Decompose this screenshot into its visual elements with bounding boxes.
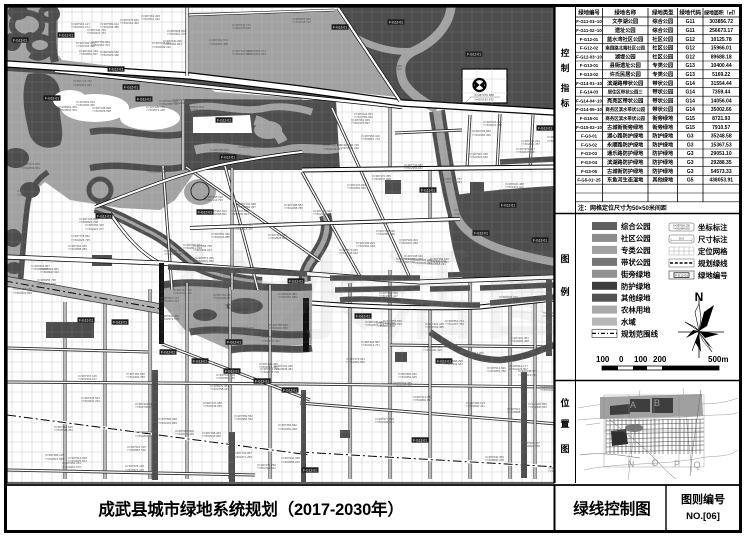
svg-text:35002.66: 35002.66 bbox=[711, 107, 732, 113]
svg-text:F-G14-04~10: F-G14-04~10 bbox=[576, 98, 602, 103]
svg-text:古城街防护绿地: 古城街防护绿地 bbox=[607, 167, 644, 175]
svg-text:A: A bbox=[630, 400, 636, 410]
svg-text:Y=503012.349: Y=503012.349 bbox=[175, 432, 194, 436]
svg-text:Y=503529.538: Y=503529.538 bbox=[92, 109, 111, 113]
svg-text:防护绿地: 防护绿地 bbox=[652, 149, 674, 157]
svg-text:Y=503588.489: Y=503588.489 bbox=[68, 247, 87, 251]
svg-text:Y=502090.441: Y=502090.441 bbox=[466, 404, 485, 408]
svg-text:标: 标 bbox=[560, 97, 570, 108]
svg-text:Y=502932.744: Y=502932.744 bbox=[81, 399, 100, 403]
svg-text:F-G12-01: F-G12-01 bbox=[501, 204, 515, 208]
svg-text:8721.93: 8721.93 bbox=[712, 116, 730, 122]
svg-text:图: 图 bbox=[560, 444, 569, 454]
svg-text:Y=503602.921: Y=503602.921 bbox=[261, 339, 280, 343]
svg-text:Y=503393.217: Y=503393.217 bbox=[185, 108, 204, 112]
svg-text:256673.17: 256673.17 bbox=[709, 28, 733, 34]
svg-text:G15: G15 bbox=[685, 116, 695, 122]
svg-text:Y=502392.649: Y=502392.649 bbox=[356, 244, 375, 248]
svg-text:15966.01: 15966.01 bbox=[711, 46, 732, 52]
svg-text:位: 位 bbox=[560, 397, 569, 408]
svg-text:F-G14-03: F-G14-03 bbox=[580, 90, 599, 95]
svg-text:B: B bbox=[654, 398, 660, 408]
svg-text:湖堤公园: 湖堤公园 bbox=[615, 52, 636, 60]
svg-text:Y=503754.689: Y=503754.689 bbox=[278, 295, 297, 299]
svg-text:Y=503331.899: Y=503331.899 bbox=[13, 291, 32, 295]
svg-text:C: C bbox=[675, 398, 682, 408]
svg-text:Y=503222.202: Y=503222.202 bbox=[393, 384, 412, 388]
svg-text:Y=503252.769: Y=503252.769 bbox=[487, 369, 506, 373]
svg-text:F-G12-01: F-G12-01 bbox=[289, 280, 303, 284]
svg-text:县衙遗址公园: 县衙遗址公园 bbox=[610, 61, 641, 69]
svg-text:31554.44: 31554.44 bbox=[711, 81, 732, 87]
svg-text:蓝水湾社区公园: 蓝水湾社区公园 bbox=[607, 35, 643, 43]
svg-text:带状公园: 带状公园 bbox=[652, 96, 673, 104]
svg-text:G13: G13 bbox=[685, 72, 695, 78]
svg-text:5169.22: 5169.22 bbox=[712, 72, 730, 78]
svg-text:F-G3-04: F-G3-04 bbox=[581, 160, 598, 165]
svg-text:F-G12-01: F-G12-01 bbox=[333, 26, 347, 30]
svg-text:F-G12-01: F-G12-01 bbox=[389, 21, 403, 25]
svg-text:15367.53: 15367.53 bbox=[711, 142, 732, 148]
svg-text:Y=503945.553: Y=503945.553 bbox=[235, 329, 254, 333]
svg-text:F-G14-01~10: F-G14-01~10 bbox=[576, 81, 602, 86]
svg-text:滨湖路防护绿地: 滨湖路防护绿地 bbox=[607, 158, 644, 166]
svg-text:F-G11-02~10: F-G11-02~10 bbox=[576, 28, 602, 33]
svg-text:Y=503365.434: Y=503365.434 bbox=[216, 376, 235, 380]
svg-text:Y=502893.623: Y=502893.623 bbox=[135, 434, 154, 438]
svg-text:F-G12-02: F-G12-02 bbox=[580, 46, 599, 51]
svg-text:防护绿地: 防护绿地 bbox=[652, 132, 674, 140]
svg-text:坐标标注: 坐标标注 bbox=[698, 223, 728, 232]
svg-text:注：网格定位尺寸为50×50米间距: 注：网格定位尺寸为50×50米间距 bbox=[578, 204, 667, 212]
svg-text:Y=502587.540: Y=502587.540 bbox=[127, 448, 146, 452]
svg-text:绿地名称: 绿地名称 bbox=[614, 8, 636, 16]
svg-text:89688.18: 89688.18 bbox=[711, 54, 732, 60]
svg-text:Y=503705.498: Y=503705.498 bbox=[213, 281, 232, 285]
svg-text:商务区滨水带状公园: 商务区滨水带状公园 bbox=[605, 115, 645, 122]
svg-text:置: 置 bbox=[560, 419, 569, 429]
svg-text:Y=503449.160: Y=503449.160 bbox=[340, 146, 359, 150]
svg-text:G12: G12 bbox=[685, 46, 695, 52]
svg-text:NO.[06]: NO.[06] bbox=[686, 511, 720, 522]
svg-text:Y=502367.114: Y=502367.114 bbox=[383, 67, 402, 71]
svg-text:G5: G5 bbox=[687, 178, 694, 184]
svg-text:图则编号: 图则编号 bbox=[681, 492, 725, 506]
svg-text:图: 图 bbox=[560, 254, 569, 264]
svg-text:Y=502951.670: Y=502951.670 bbox=[62, 465, 81, 469]
svg-text:0: 0 bbox=[619, 355, 624, 364]
svg-text:7359.44: 7359.44 bbox=[712, 90, 730, 96]
svg-text:南园路北端社区公园: 南园路北端社区公园 bbox=[605, 45, 645, 52]
svg-text:N: N bbox=[628, 459, 635, 469]
svg-text:绿地代码: 绿地代码 bbox=[679, 8, 701, 16]
svg-text:29288.35: 29288.35 bbox=[711, 160, 732, 166]
svg-text:Y=502389.199: Y=502389.199 bbox=[376, 232, 395, 236]
svg-text:Y=502501.242: Y=502501.242 bbox=[141, 17, 160, 21]
svg-text:Y=503469.308: Y=503469.308 bbox=[510, 339, 529, 343]
svg-text:Y=502171.538: Y=502171.538 bbox=[37, 282, 56, 286]
svg-text:Y=502956.846: Y=502956.846 bbox=[404, 166, 423, 170]
svg-text:Y=503758.327: Y=503758.327 bbox=[210, 387, 229, 391]
svg-text:商务区滨水带状公园: 商务区滨水带状公园 bbox=[605, 106, 645, 113]
svg-text:G3: G3 bbox=[687, 142, 694, 148]
svg-text:Y=503000.966: Y=503000.966 bbox=[521, 444, 540, 448]
svg-text:Y=503365.462: Y=503365.462 bbox=[465, 355, 484, 359]
svg-text:湖心路防护绿地: 湖心路防护绿地 bbox=[607, 132, 644, 140]
svg-text:滨湖路带状公园: 滨湖路带状公园 bbox=[607, 79, 643, 87]
svg-text:制: 制 bbox=[561, 62, 570, 73]
svg-text:Y=502141.763: Y=502141.763 bbox=[204, 198, 223, 202]
svg-text:G3: G3 bbox=[687, 134, 694, 140]
svg-text:P: P bbox=[674, 459, 680, 469]
svg-text:农林用地: 农林用地 bbox=[620, 306, 651, 315]
svg-text:F-G13-01: F-G13-01 bbox=[580, 63, 599, 68]
svg-text:G13: G13 bbox=[685, 63, 695, 69]
svg-text:Y=503260.408: Y=503260.408 bbox=[278, 427, 297, 431]
svg-text:X=387070.588: X=387070.588 bbox=[474, 93, 494, 97]
svg-text:G14: G14 bbox=[685, 98, 695, 104]
svg-text:F-G3-05: F-G3-05 bbox=[581, 169, 598, 174]
svg-text:G14: G14 bbox=[685, 107, 695, 113]
svg-text:街旁绿地: 街旁绿地 bbox=[620, 270, 651, 279]
svg-text:Y=502301.147: Y=502301.147 bbox=[78, 377, 97, 381]
svg-text:综合公园: 综合公园 bbox=[621, 222, 651, 231]
svg-text:定位网格: 定位网格 bbox=[698, 247, 728, 256]
svg-text:F-G3-01: F-G3-01 bbox=[581, 134, 598, 139]
svg-text:社区公园: 社区公园 bbox=[651, 44, 673, 52]
svg-text:Y=502569.951: Y=502569.951 bbox=[21, 166, 40, 170]
svg-text:社区公园: 社区公园 bbox=[651, 35, 673, 43]
svg-text:Y=503182.872: Y=503182.872 bbox=[474, 98, 494, 102]
svg-text:专类公园: 专类公园 bbox=[652, 61, 673, 69]
svg-text:亮亮区带状公园: 亮亮区带状公园 bbox=[607, 96, 643, 104]
svg-text:防护绿地: 防护绿地 bbox=[652, 167, 674, 175]
svg-text:Y=502891.851: Y=502891.851 bbox=[413, 398, 432, 402]
svg-text:F-G12-01: F-G12-01 bbox=[467, 53, 481, 57]
svg-text:Y=502947.995: Y=502947.995 bbox=[372, 177, 391, 181]
svg-text:F-G15-01: F-G15-01 bbox=[580, 116, 599, 121]
svg-text:居住区带状公园三: 居住区带状公园三 bbox=[608, 89, 644, 96]
svg-text:Y=502719.621: Y=502719.621 bbox=[257, 466, 276, 470]
svg-text:7910.57: 7910.57 bbox=[712, 125, 730, 131]
svg-text:Y=503892.906: Y=503892.906 bbox=[527, 33, 546, 37]
svg-text:Y=502480.443: Y=502480.443 bbox=[164, 252, 183, 256]
svg-text:F-G3-03: F-G3-03 bbox=[581, 151, 598, 156]
svg-text:F-G12-01: F-G12-01 bbox=[124, 86, 138, 90]
svg-text:Y=502191.869: Y=502191.869 bbox=[158, 421, 177, 425]
svg-text:200: 200 bbox=[653, 355, 667, 364]
svg-text:Y=502124.845: Y=502124.845 bbox=[313, 212, 332, 216]
svg-text:Y=503167.784: Y=503167.784 bbox=[445, 322, 464, 326]
svg-text:Y=503382.340: Y=503382.340 bbox=[472, 133, 491, 137]
svg-text:Y=503701.385: Y=503701.385 bbox=[425, 325, 444, 329]
svg-text:许氏民居公园: 许氏民居公园 bbox=[610, 70, 641, 78]
svg-text:带状公园: 带状公园 bbox=[652, 79, 673, 87]
svg-text:Y=502921.869: Y=502921.869 bbox=[195, 259, 214, 263]
svg-text:O: O bbox=[651, 458, 658, 468]
svg-text:F-G12-03~10: F-G12-03~10 bbox=[576, 54, 602, 59]
svg-text:水域: 水域 bbox=[621, 318, 636, 327]
svg-text:文亭湖公园: 文亭湖公园 bbox=[612, 17, 638, 25]
svg-text:F-G12-01: F-G12-01 bbox=[193, 360, 207, 364]
svg-text:F-G5-01~25: F-G5-01~25 bbox=[577, 178, 601, 183]
svg-text:Y=502321.277: Y=502321.277 bbox=[85, 227, 104, 231]
svg-text:绿地类型: 绿地类型 bbox=[652, 8, 674, 16]
svg-text:遗址公园: 遗址公园 bbox=[614, 26, 636, 34]
svg-text:Y=503594.324: Y=503594.324 bbox=[54, 428, 73, 432]
svg-text:F-G12-01: F-G12-01 bbox=[538, 127, 552, 131]
svg-text:F-G12-01: F-G12-01 bbox=[97, 215, 111, 219]
svg-text:带状公园: 带状公园 bbox=[621, 258, 651, 267]
svg-text:G11: G11 bbox=[686, 19, 695, 25]
svg-text:Y=502435.611: Y=502435.611 bbox=[232, 26, 251, 30]
svg-text:防护绿地: 防护绿地 bbox=[652, 140, 674, 148]
svg-text:Y=503432.885: Y=503432.885 bbox=[211, 235, 230, 239]
svg-text:Y=502019.736: Y=502019.736 bbox=[518, 373, 537, 377]
svg-text:Y=502745.171: Y=502745.171 bbox=[135, 405, 154, 409]
svg-text:Y=503349.390: Y=503349.390 bbox=[203, 404, 222, 408]
svg-text:成武县城市绿地系统规划（2017-2030年）: 成武县城市绿地系统规划（2017-2030年） bbox=[98, 499, 403, 519]
svg-text:Y=502992.344: Y=502992.344 bbox=[160, 299, 179, 303]
svg-text:控: 控 bbox=[561, 47, 570, 58]
svg-text:Y=502161.400: Y=502161.400 bbox=[120, 21, 139, 25]
svg-text:F-G3-02: F-G3-02 bbox=[581, 142, 598, 147]
svg-text:F-G12-01: F-G12-01 bbox=[675, 273, 688, 277]
svg-text:F-G12-01: F-G12-01 bbox=[109, 68, 123, 72]
svg-text:综合公园: 综合公园 bbox=[652, 17, 673, 25]
svg-text:Y=502006.996: Y=502006.996 bbox=[76, 103, 95, 107]
svg-text:Y=502308.492: Y=502308.492 bbox=[173, 291, 192, 295]
svg-text:500m: 500m bbox=[708, 355, 728, 364]
svg-text:F-G13-02: F-G13-02 bbox=[580, 72, 599, 77]
svg-text:例: 例 bbox=[560, 286, 569, 297]
svg-text:F-G12-01: F-G12-01 bbox=[580, 37, 599, 42]
svg-text:Y=503944.304: Y=503944.304 bbox=[58, 108, 77, 112]
svg-text:F-G12-01: F-G12-01 bbox=[113, 321, 127, 325]
svg-text:Y=502216.470: Y=502216.470 bbox=[234, 227, 253, 231]
svg-text:规划范围线: 规划范围线 bbox=[621, 330, 659, 339]
svg-text:Y=503881.713: Y=503881.713 bbox=[361, 137, 380, 141]
svg-text:尺寸标注: 尺寸标注 bbox=[697, 235, 728, 244]
svg-text:Y=503531.158: Y=503531.158 bbox=[483, 123, 502, 127]
svg-text:Y=503301.473: Y=503301.473 bbox=[167, 32, 186, 36]
svg-text:Y=503369.917: Y=503369.917 bbox=[193, 248, 212, 252]
svg-text:Y=503928.303: Y=503928.303 bbox=[268, 236, 287, 240]
svg-text:30.0: 30.0 bbox=[679, 237, 685, 241]
svg-text:303856.72: 303856.72 bbox=[709, 19, 733, 25]
svg-text:Y=502952.945: Y=502952.945 bbox=[398, 375, 417, 379]
svg-text:438053.91: 438053.91 bbox=[709, 178, 733, 184]
svg-text:F-G12-01: F-G12-01 bbox=[59, 34, 73, 38]
svg-text:Y=503271.258: Y=503271.258 bbox=[233, 455, 252, 459]
svg-text:其他绿地: 其他绿地 bbox=[621, 294, 651, 303]
svg-text:社区公园: 社区公园 bbox=[620, 234, 651, 243]
svg-text:F-G11-01~10: F-G11-01~10 bbox=[576, 19, 602, 24]
svg-text:G15: G15 bbox=[685, 125, 695, 131]
svg-text:Y=502392.780: Y=502392.780 bbox=[126, 375, 145, 379]
svg-text:Y=503800.478: Y=503800.478 bbox=[485, 458, 504, 462]
svg-text:Y=502292.242: Y=502292.242 bbox=[247, 52, 266, 56]
svg-text:F-G12-01: F-G12-01 bbox=[437, 360, 451, 364]
svg-text:G14: G14 bbox=[685, 90, 695, 96]
svg-text:Y=502810.787: Y=502810.787 bbox=[521, 142, 540, 146]
svg-text:Y=503437.763: Y=503437.763 bbox=[87, 31, 106, 35]
svg-text:Y=502190.326: Y=502190.326 bbox=[423, 348, 442, 352]
svg-text:东鱼河生态湿地: 东鱼河生态湿地 bbox=[607, 176, 644, 184]
svg-text:F-G12-01: F-G12-01 bbox=[137, 98, 151, 102]
svg-text:Y=502969.643: Y=502969.643 bbox=[383, 322, 402, 326]
svg-text:Y=503630.901: Y=503630.901 bbox=[230, 212, 249, 216]
svg-text:防护绿地: 防护绿地 bbox=[621, 282, 651, 291]
svg-text:F-G15-02~10: F-G15-02~10 bbox=[576, 125, 602, 130]
svg-text:规划绿线: 规划绿线 bbox=[698, 259, 728, 268]
svg-text:Y=503923.218: Y=503923.218 bbox=[125, 468, 144, 472]
svg-text:社区公园: 社区公园 bbox=[651, 52, 673, 60]
svg-text:Y=503883.737: Y=503883.737 bbox=[30, 133, 49, 137]
svg-text:永顺路防护绿地: 永顺路防护绿地 bbox=[606, 140, 644, 148]
svg-text:Y=503429.448: Y=503429.448 bbox=[100, 53, 119, 57]
svg-text:Y=502163.338: Y=502163.338 bbox=[76, 44, 95, 48]
svg-text:G12: G12 bbox=[685, 54, 695, 60]
svg-text:Y=503481.690: Y=503481.690 bbox=[347, 186, 366, 190]
svg-text:F-G12-01: F-G12-01 bbox=[356, 315, 370, 319]
svg-text:Y=502625.735: Y=502625.735 bbox=[71, 238, 90, 242]
svg-text:绿地编号: 绿地编号 bbox=[698, 271, 728, 280]
svg-text:G3: G3 bbox=[687, 169, 694, 175]
svg-text:Q: Q bbox=[693, 460, 700, 470]
svg-text:F-G12-01: F-G12-01 bbox=[221, 156, 235, 160]
svg-text:14056.04: 14056.04 bbox=[711, 98, 732, 104]
svg-text:街旁绿地: 街旁绿地 bbox=[651, 114, 674, 122]
svg-text:F-G12-01: F-G12-01 bbox=[198, 211, 212, 215]
svg-text:G3: G3 bbox=[687, 151, 694, 157]
svg-text:Y=502984.662: Y=502984.662 bbox=[673, 227, 691, 231]
svg-text:F-G14-05~10: F-G14-05~10 bbox=[576, 107, 602, 112]
svg-text:35248.58: 35248.58 bbox=[711, 134, 732, 140]
svg-text:F-G12-01: F-G12-01 bbox=[227, 341, 241, 345]
svg-text:100: 100 bbox=[596, 355, 610, 364]
svg-text:G12: G12 bbox=[685, 37, 695, 43]
svg-text:综合公园: 综合公园 bbox=[652, 26, 673, 34]
svg-text:绿线控制图: 绿线控制图 bbox=[573, 499, 651, 518]
svg-text:通乐路防护绿地: 通乐路防护绿地 bbox=[607, 149, 644, 157]
svg-text:防护绿地: 防护绿地 bbox=[652, 158, 674, 166]
svg-text:Y=502999.379: Y=502999.379 bbox=[213, 296, 232, 300]
svg-text:专类公园: 专类公园 bbox=[652, 70, 673, 78]
svg-text:G14: G14 bbox=[685, 81, 695, 87]
svg-text:绿地面积（㎡）: 绿地面积（㎡） bbox=[704, 9, 738, 16]
svg-text:Y=502849.438: Y=502849.438 bbox=[240, 305, 259, 309]
svg-text:10125.78: 10125.78 bbox=[711, 37, 732, 43]
svg-text:指: 指 bbox=[561, 82, 570, 93]
svg-text:古城街街旁绿地: 古城街街旁绿地 bbox=[607, 123, 644, 131]
svg-text:G3: G3 bbox=[687, 160, 694, 166]
svg-text:Y=503414.761: Y=503414.761 bbox=[361, 343, 380, 347]
svg-text:Y=502952.552: Y=502952.552 bbox=[234, 417, 253, 421]
svg-text:54573.33: 54573.33 bbox=[711, 169, 732, 175]
svg-text:Y=502273.575: Y=502273.575 bbox=[160, 317, 179, 321]
svg-text:带状公园: 带状公园 bbox=[652, 88, 673, 96]
svg-text:Y=503477.423: Y=503477.423 bbox=[365, 323, 384, 327]
svg-text:Y=503842.562: Y=503842.562 bbox=[454, 212, 473, 216]
svg-text:F-G12-01: F-G12-01 bbox=[161, 351, 175, 355]
svg-text:Y=502532.435: Y=502532.435 bbox=[17, 193, 36, 197]
svg-text:街旁绿地: 街旁绿地 bbox=[651, 123, 674, 131]
svg-text:Y=502175.597: Y=502175.597 bbox=[351, 121, 370, 125]
svg-text:10400.44: 10400.44 bbox=[711, 63, 732, 69]
svg-text:Y=502546.906: Y=502546.906 bbox=[202, 434, 221, 438]
svg-text:Y=503574.448: Y=503574.448 bbox=[146, 108, 165, 112]
svg-text:Y=502210.112: Y=502210.112 bbox=[238, 145, 257, 149]
svg-text:100: 100 bbox=[634, 355, 648, 364]
svg-text:带状公园: 带状公园 bbox=[652, 105, 673, 113]
svg-text:Y=502330.552: Y=502330.552 bbox=[528, 405, 547, 409]
svg-text:Y=502258.785: Y=502258.785 bbox=[284, 206, 303, 210]
svg-text:专类公园: 专类公园 bbox=[621, 246, 651, 255]
svg-text:其他绿地: 其他绿地 bbox=[652, 176, 674, 184]
svg-text:Y=502313.263: Y=502313.263 bbox=[73, 83, 92, 87]
svg-text:Y=503182.821: Y=503182.821 bbox=[163, 42, 182, 46]
svg-text:绿地编号: 绿地编号 bbox=[578, 8, 600, 16]
svg-text:G11: G11 bbox=[686, 28, 695, 34]
svg-text:29051.10: 29051.10 bbox=[711, 151, 732, 157]
